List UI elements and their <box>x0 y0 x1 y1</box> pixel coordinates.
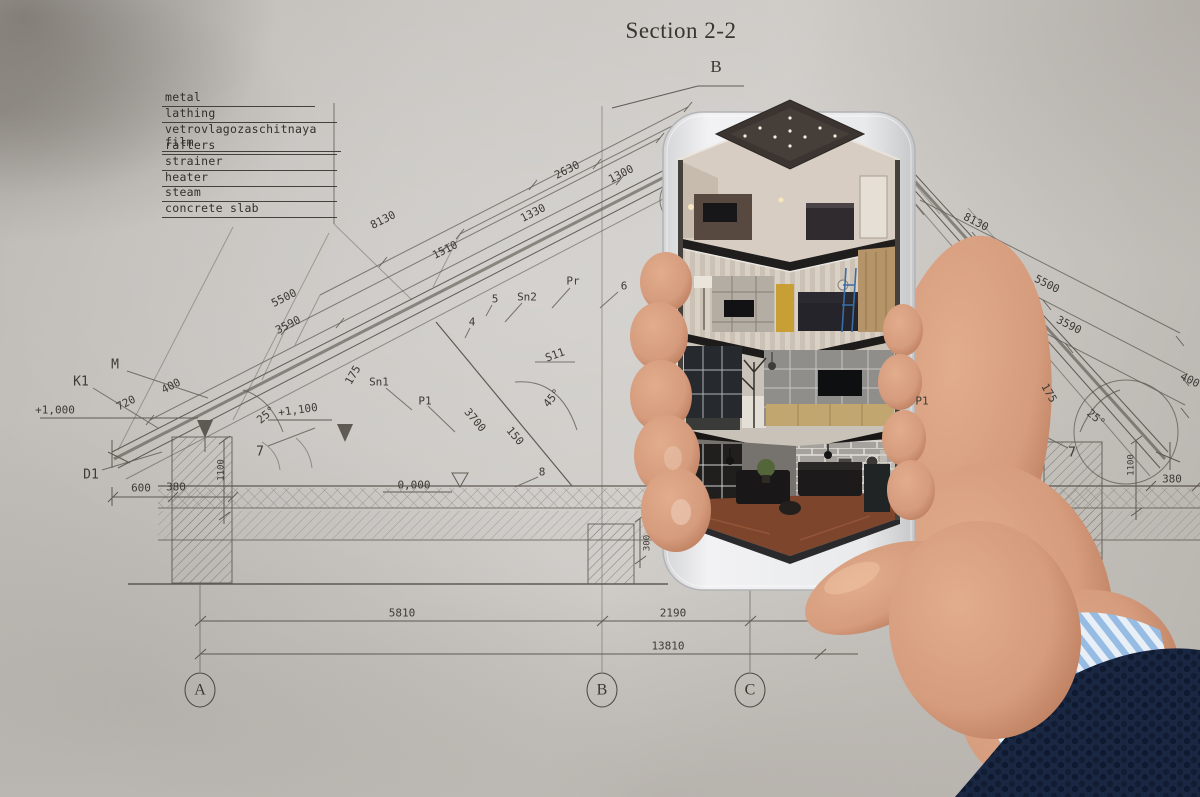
fingernail <box>664 446 682 470</box>
scene <box>0 0 1200 797</box>
photo-composite: Section 2-2 metal lathing vetrovlagozasc… <box>0 0 1200 797</box>
finger <box>878 354 922 410</box>
finger <box>630 302 688 370</box>
finger <box>882 410 926 466</box>
finger <box>640 252 692 312</box>
fingernail <box>671 499 691 525</box>
phone-screen-cutaway <box>678 100 900 564</box>
finger <box>887 460 935 520</box>
finger <box>883 304 923 356</box>
